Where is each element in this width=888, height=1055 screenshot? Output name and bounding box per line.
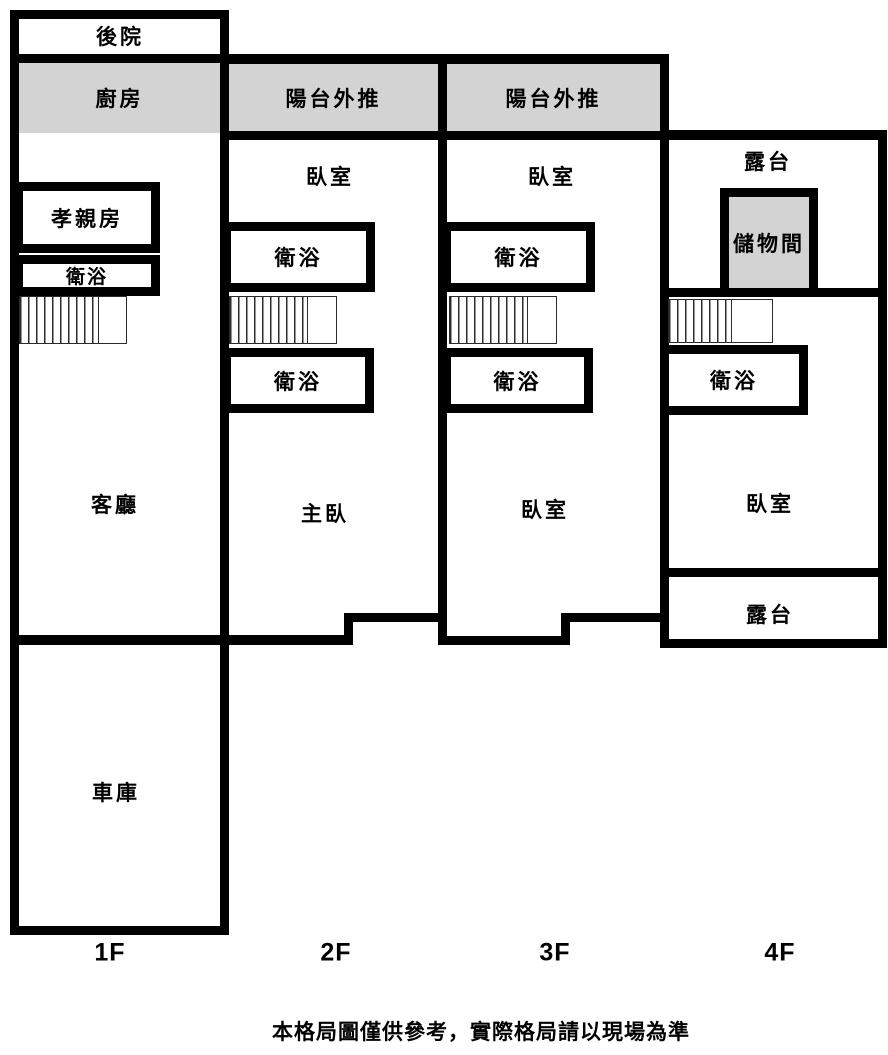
wall-segment xyxy=(660,568,887,577)
room-label-parents-room: 孝親房 xyxy=(51,203,123,233)
stair-treads-icon xyxy=(669,300,732,342)
room-bathroom-1f: 衛浴 xyxy=(14,255,160,296)
room-bathroom-4f: 衛浴 xyxy=(660,345,808,415)
wall-segment xyxy=(344,613,447,622)
wall-segment xyxy=(220,10,229,935)
wall-segment xyxy=(438,636,570,645)
room-label-bathroom-1f: 衛浴 xyxy=(66,262,108,289)
wall-segment xyxy=(10,10,229,19)
room-bathroom-2f-lower: 衛浴 xyxy=(222,348,374,413)
wall-segment xyxy=(10,10,19,935)
room-label-bathroom-2f-upper: 衛浴 xyxy=(275,242,323,272)
stair-treads-icon xyxy=(20,297,99,343)
room-label-master-bedroom: 主臥 xyxy=(301,498,349,528)
wall-segment xyxy=(10,635,229,645)
room-balcony-extension-3f: 陽台外推 xyxy=(438,55,669,140)
room-bathroom-3f-lower: 衛浴 xyxy=(442,348,593,413)
room-label-garage: 車庫 xyxy=(92,777,140,807)
room-label-storage: 儲物間 xyxy=(733,228,805,258)
room-kitchen: 廚房 xyxy=(19,63,220,133)
floor-label-3f: 3F xyxy=(539,939,570,968)
wall-segment xyxy=(10,926,229,935)
staircase-4f xyxy=(668,299,773,343)
staircase-2f xyxy=(229,296,337,344)
wall-segment xyxy=(561,613,669,622)
room-label-bathroom-3f-upper: 衛浴 xyxy=(495,242,543,272)
staircase-3f xyxy=(449,296,557,344)
room-label-balcony-extension-3f: 陽台外推 xyxy=(506,83,602,113)
room-label-bedroom-4f: 臥室 xyxy=(746,488,794,518)
room-label-bedroom-2f: 臥室 xyxy=(306,161,354,191)
floor-label-1f: 1F xyxy=(94,939,125,968)
room-storage: 儲物間 xyxy=(720,188,818,297)
stair-treads-icon xyxy=(450,297,528,343)
room-balcony-extension-2f: 陽台外推 xyxy=(220,55,447,140)
room-label-bathroom-2f-lower: 衛浴 xyxy=(274,366,322,396)
wall-segment xyxy=(220,635,353,645)
room-parents-room: 孝親房 xyxy=(14,182,160,253)
room-label-bedroom-3f-upper: 臥室 xyxy=(528,161,576,191)
room-label-kitchen: 廚房 xyxy=(96,83,144,113)
floor-label-4f: 4F xyxy=(764,939,795,968)
room-label-living-room: 客廳 xyxy=(91,489,139,519)
room-bathroom-3f-upper: 衛浴 xyxy=(442,222,595,292)
floor-label-2f: 2F xyxy=(320,939,351,968)
room-label-backyard: 後院 xyxy=(96,21,144,51)
disclaimer-text: 本格局圖僅供參考，實際格局請以現場為準 xyxy=(272,1016,690,1046)
room-label-bathroom-3f-lower: 衛浴 xyxy=(494,366,542,396)
room-label-bedroom-3f-lower: 臥室 xyxy=(521,494,569,524)
room-bathroom-2f-upper: 衛浴 xyxy=(222,222,375,292)
stair-treads-icon xyxy=(230,297,308,343)
room-label-bathroom-4f: 衛浴 xyxy=(710,365,758,395)
room-label-terrace-4f-lower: 露台 xyxy=(746,599,794,629)
wall-segment xyxy=(660,639,887,648)
floor-plan-canvas: 廚房 陽台外推 陽台外推 儲物間 孝親房 衛浴 衛浴 衛浴 衛浴 衛浴 衛浴 xyxy=(0,0,888,1055)
room-label-terrace-4f-upper: 露台 xyxy=(744,146,792,176)
wall-segment xyxy=(660,130,887,140)
room-label-balcony-extension-2f: 陽台外推 xyxy=(286,83,382,113)
staircase-1f xyxy=(19,296,127,344)
